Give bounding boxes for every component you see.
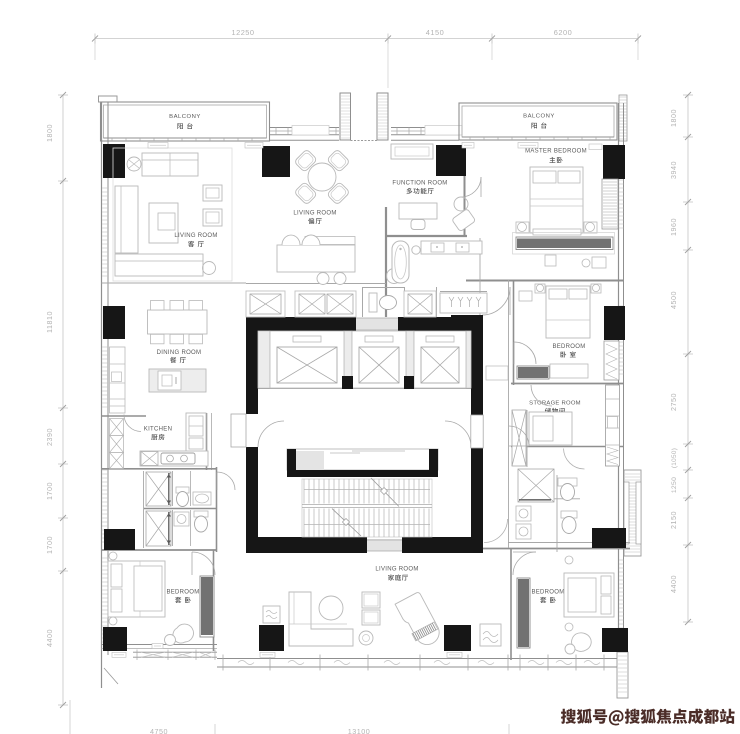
svg-text:BEDROOM: BEDROOM: [552, 344, 585, 350]
svg-text:MASTER BEDROOM: MASTER BEDROOM: [525, 149, 587, 155]
svg-text:1800: 1800: [669, 109, 678, 127]
svg-text:STORAGE ROOM: STORAGE ROOM: [529, 401, 581, 407]
svg-text:LIVING ROOM: LIVING ROOM: [293, 211, 336, 217]
svg-text:4400: 4400: [45, 629, 54, 647]
svg-text:KITCHEN: KITCHEN: [144, 427, 172, 433]
svg-text:3940: 3940: [669, 161, 678, 179]
svg-text:11810: 11810: [45, 311, 54, 333]
svg-text:BALCONY: BALCONY: [169, 114, 201, 120]
svg-text:BALCONY: BALCONY: [523, 114, 555, 120]
svg-text:FUNCTION ROOM: FUNCTION ROOM: [392, 181, 447, 187]
svg-text:4750: 4750: [150, 727, 168, 734]
svg-text:DINING ROOM: DINING ROOM: [157, 350, 202, 356]
svg-text:6200: 6200: [554, 28, 572, 37]
svg-text:1800: 1800: [45, 124, 54, 142]
svg-text:LIVING ROOM: LIVING ROOM: [375, 567, 418, 573]
svg-text:2750: 2750: [669, 393, 678, 411]
svg-text:LIVING ROOM: LIVING ROOM: [174, 233, 217, 239]
svg-text:1700: 1700: [45, 536, 54, 554]
svg-text:4500: 4500: [669, 291, 678, 309]
svg-text:(1050): (1050): [671, 448, 678, 468]
svg-text:BEDROOM: BEDROOM: [166, 590, 199, 596]
svg-text:BEDROOM: BEDROOM: [531, 590, 564, 596]
svg-text:13100: 13100: [348, 727, 371, 734]
svg-text:1960: 1960: [669, 218, 678, 236]
svg-text:4150: 4150: [426, 28, 444, 37]
svg-text:1700: 1700: [45, 482, 54, 500]
svg-text:12250: 12250: [231, 28, 254, 37]
svg-text:2390: 2390: [45, 428, 54, 446]
svg-text:1250: 1250: [671, 477, 678, 493]
svg-text:4400: 4400: [669, 575, 678, 593]
svg-text:2150: 2150: [669, 511, 678, 529]
